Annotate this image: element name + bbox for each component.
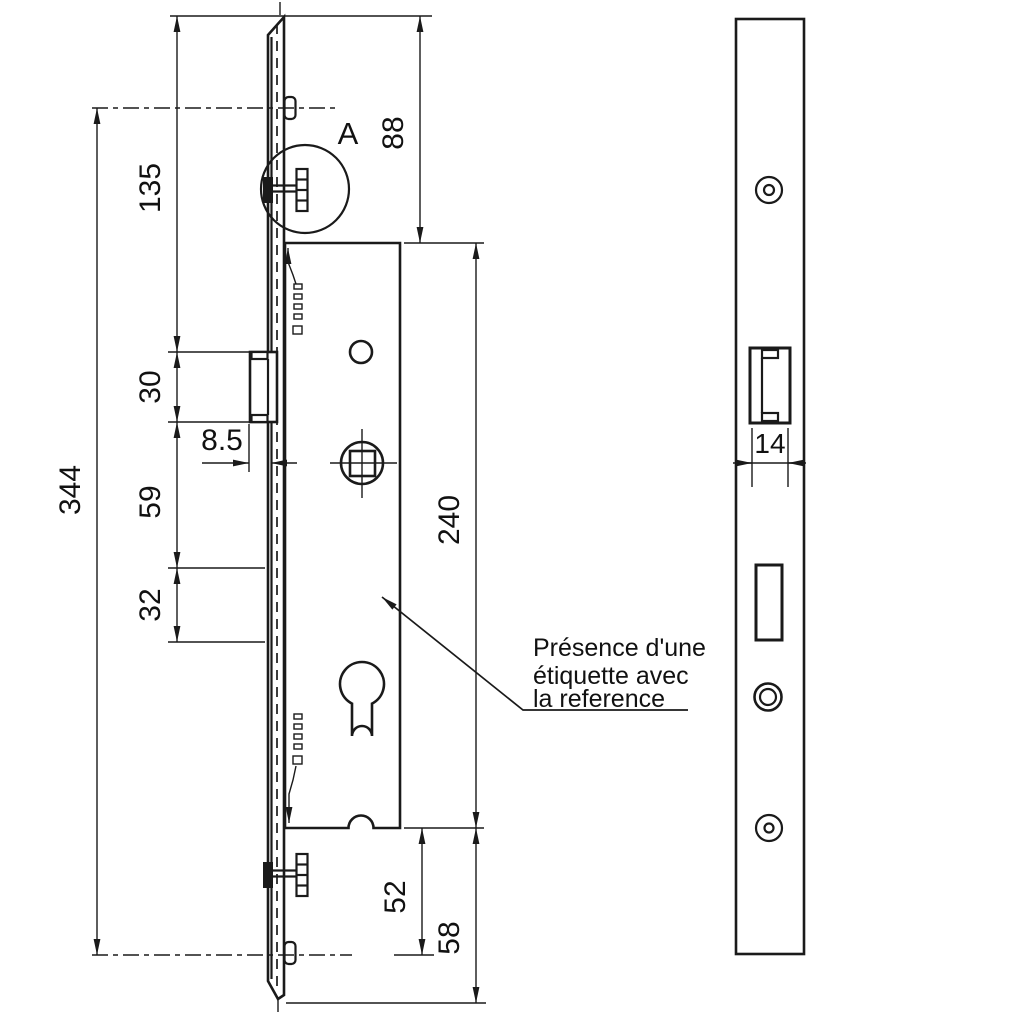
dim-88-label: 88	[377, 116, 410, 149]
dim-52-label: 52	[379, 880, 412, 913]
lock-technical-drawing: A	[0, 0, 1024, 1024]
latch-bolt-side	[250, 352, 277, 422]
note-line-1: Présence d'une	[533, 634, 706, 662]
dim-240-label: 240	[433, 495, 466, 545]
cam-bottom-front-bar	[263, 862, 273, 888]
dim-8p5-label: 8.5	[201, 424, 243, 457]
detail-a-label: A	[338, 116, 359, 151]
note-line-3: la reference	[533, 685, 665, 713]
latch-tab-bottom	[252, 415, 268, 422]
cam-top-front-bar	[263, 177, 273, 203]
dim-14-label: 14	[754, 428, 785, 459]
dim-344-label: 344	[54, 465, 87, 515]
dim-59-label: 59	[134, 485, 167, 518]
dim-135-label: 135	[134, 163, 167, 213]
technical-drawing-page: A	[0, 0, 1024, 1024]
dim-30-label: 30	[134, 370, 167, 403]
dim-58-label: 58	[433, 921, 466, 954]
roller-bracket-bottom	[285, 942, 296, 964]
latch-body	[250, 352, 277, 422]
dim-32-label: 32	[134, 588, 167, 621]
latch-tab-top	[252, 352, 268, 359]
